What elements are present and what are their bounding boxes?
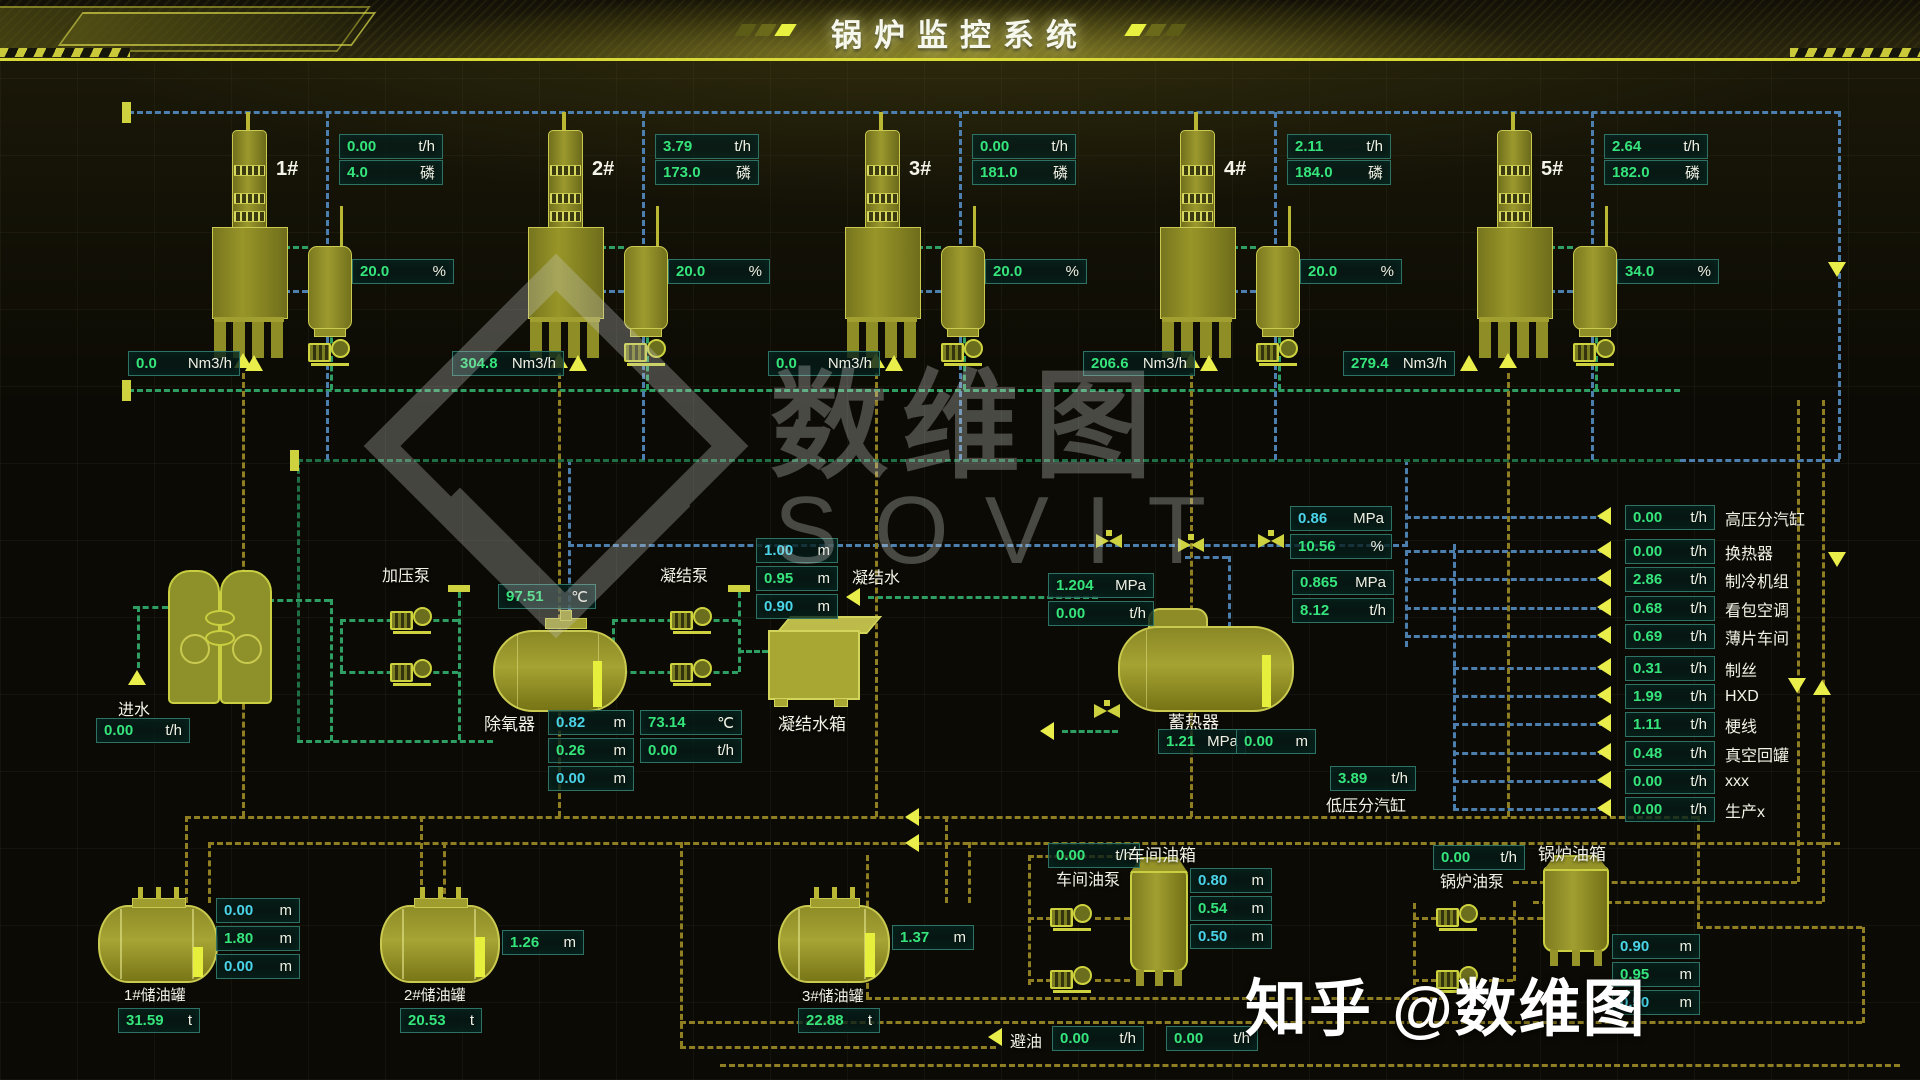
- pipe-segment: [1797, 400, 1800, 882]
- accumulator-inlet-valve[interactable]: [1094, 700, 1120, 721]
- drum-vent-pipe: [1605, 206, 1608, 246]
- boiler-oil-pump-flow-readout: 0.00t/h: [1433, 845, 1525, 870]
- inlet-label: 进水: [118, 696, 150, 720]
- flow-arrow-left: [1597, 686, 1611, 704]
- feedwater-pump[interactable]: [1256, 336, 1300, 366]
- drum-vent-pipe: [340, 206, 343, 246]
- flow-arrow-up: [1813, 680, 1831, 695]
- economizer-vent-pipe: [1511, 112, 1515, 130]
- tank2-label: 2#储油罐: [404, 984, 466, 1005]
- flow-arrow-down: [1828, 262, 1846, 277]
- pipe-end-cap: [728, 585, 750, 592]
- gas-flow-readout: 304.8Nm3/h: [452, 351, 587, 376]
- pipe-segment: [1507, 373, 1510, 817]
- lp-header-label: 低压分汽缸: [1326, 792, 1406, 816]
- boiler-body[interactable]: [1477, 227, 1553, 319]
- flow-arrow-up: [128, 670, 146, 685]
- pipe-segment: [1822, 400, 1825, 902]
- pipe-segment: [1480, 917, 1543, 920]
- consumer-label: xxx: [1725, 773, 1749, 791]
- boiler-oil-pump-label: 锅炉油泵: [1440, 868, 1504, 892]
- pipe-segment: [297, 459, 300, 741]
- pipe-segment: [1697, 816, 1700, 928]
- boiler-oil-pump-1[interactable]: [1436, 901, 1480, 931]
- header-pressure-readouts: 0.86MPa 10.56%: [1290, 506, 1392, 562]
- pipe-end-cap: [290, 450, 299, 471]
- economizer-stack[interactable]: [1180, 130, 1215, 230]
- boiler-id-label: 1#: [276, 158, 298, 181]
- economizer-stack[interactable]: [1497, 130, 1532, 230]
- flow-arrow-up: [245, 355, 263, 371]
- flow-arrow-up: [569, 355, 587, 371]
- pipe-segment: [1028, 979, 1052, 982]
- drum-vent-pipe: [1288, 206, 1291, 246]
- page-title: 锅炉监控系统: [0, 10, 1920, 55]
- consumer-row[interactable]: 0.31t/h 制丝: [1625, 656, 1757, 681]
- boiler-id-label: 4#: [1224, 158, 1246, 181]
- consumer-row[interactable]: 0.00t/h 高压分汽缸: [1625, 505, 1805, 530]
- pipe-segment: [185, 816, 188, 903]
- pipe-segment: [330, 599, 333, 741]
- flow-arrow-left: [846, 588, 860, 606]
- pipe-segment: [1095, 979, 1130, 982]
- consumer-flow-readout: 1.99t/h: [1625, 684, 1715, 709]
- pipe-segment: [128, 389, 1680, 392]
- condensate-pump-1[interactable]: [670, 604, 714, 634]
- load-percent-readout: 20.0%: [1300, 259, 1402, 284]
- consumer-flow-readout: 0.48t/h: [1625, 741, 1715, 766]
- feedwater-pump[interactable]: [624, 336, 668, 366]
- flow-arrow-up: [1200, 355, 1218, 371]
- steam-valve-1[interactable]: [1096, 530, 1122, 551]
- steam-flow-readout: 3.79t/h: [655, 134, 759, 159]
- phosphate-readout: 173.0磷: [655, 160, 759, 185]
- boiler-body[interactable]: [212, 227, 288, 319]
- pipe-segment: [680, 842, 683, 1047]
- tank2-level-readout: 1.26m: [502, 930, 584, 955]
- economizer-vent-pipe: [246, 112, 250, 130]
- tank3-label: 3#储油罐: [802, 985, 864, 1006]
- economizer-vent-pipe: [562, 112, 566, 130]
- tank1-label: 1#储油罐: [124, 984, 186, 1005]
- flow-arrow-left: [1597, 771, 1611, 789]
- steam-drum[interactable]: [1573, 246, 1617, 330]
- consumer-label: 生产x: [1725, 798, 1765, 822]
- phosphate-readout: 182.0磷: [1604, 160, 1708, 185]
- watermark-en-text: SOVIT: [774, 476, 1242, 586]
- pipe-segment: [738, 592, 741, 672]
- steam-valve-2[interactable]: [1178, 534, 1204, 555]
- pipe-segment: [1405, 635, 1605, 638]
- softener-link: [205, 610, 235, 626]
- steam-flow-readout: 0.00t/h: [972, 134, 1076, 159]
- pressure-pump-2[interactable]: [390, 656, 434, 686]
- deaerator-level-readouts: 0.82m 0.26m 0.00m: [548, 710, 634, 794]
- consumer-label: 制丝: [1725, 657, 1757, 681]
- pipe-segment: [1095, 917, 1130, 920]
- boiler-id-label: 2#: [592, 158, 614, 181]
- oil-tank-3[interactable]: [778, 905, 890, 983]
- economizer-stack[interactable]: [548, 130, 583, 230]
- pipe-segment: [1453, 723, 1605, 726]
- pipe-segment: [340, 619, 343, 671]
- consumer-flow-readout: 0.69t/h: [1625, 624, 1715, 649]
- pipe-end-cap: [122, 102, 131, 123]
- accumulator-vessel[interactable]: [1118, 626, 1294, 712]
- flow-arrow-down: [1828, 552, 1846, 567]
- pipe-segment: [1062, 730, 1118, 733]
- flow-arrow-left: [1597, 541, 1611, 559]
- economizer-vent-pipe: [1194, 112, 1198, 130]
- drain-label: 避油: [1010, 1028, 1042, 1052]
- drum-vent-pipe: [656, 206, 659, 246]
- shop-oil-tank[interactable]: [1130, 868, 1188, 972]
- deaerator-vessel[interactable]: [493, 630, 627, 712]
- gas-flow-readout: 0.0Nm3/h: [128, 351, 263, 376]
- economizer-vent-pipe: [879, 112, 883, 130]
- tank1-level-readouts: 0.00m 1.80m 0.00m: [216, 898, 300, 982]
- boiler-oil-tank-label: 锅炉油箱: [1538, 840, 1606, 865]
- phosphate-readout: 4.0磷: [339, 160, 443, 185]
- pipe-end-cap: [122, 380, 131, 401]
- header-flow-readouts: 0.865MPa 8.12t/h: [1292, 570, 1394, 626]
- flow-arrow-up: [1460, 355, 1478, 371]
- boiler-id-label: 5#: [1541, 158, 1563, 181]
- consumer-row[interactable]: 0.69t/h 薄片车间: [1625, 624, 1789, 649]
- pipe-segment: [1862, 927, 1865, 1023]
- pipe-segment: [1228, 556, 1231, 628]
- steam-drum[interactable]: [308, 246, 352, 330]
- pipe-segment: [1405, 578, 1605, 581]
- steam-flow-readout: 2.64t/h: [1604, 134, 1708, 159]
- hazard-stripe-right: [1790, 48, 1920, 57]
- pipe-segment: [1453, 544, 1456, 810]
- pipe-segment: [137, 606, 140, 668]
- condensate-pump-2[interactable]: [670, 656, 714, 686]
- lp-header-flow-readout: 3.89t/h: [1330, 766, 1416, 791]
- pipe-segment: [208, 842, 211, 903]
- pipe-segment: [738, 650, 768, 653]
- flow-arrow-left: [905, 808, 919, 826]
- boiler-scada-screen: 锅炉监控系统: [0, 0, 1920, 1080]
- boiler-id-label: 3#: [909, 158, 931, 181]
- pipe-segment: [1453, 780, 1605, 783]
- tank3-level-readout: 1.37m: [892, 925, 974, 950]
- phosphate-readout: 184.0磷: [1287, 160, 1391, 185]
- shop-pump-flow-readout: 0.00t/h: [1048, 843, 1140, 868]
- consumer-label: 制冷机组: [1725, 568, 1789, 592]
- consumer-row[interactable]: 1.99t/h HXD: [1625, 684, 1759, 709]
- shop-oil-pump-1[interactable]: [1050, 901, 1094, 931]
- pipe-segment: [1413, 917, 1437, 920]
- steam-valve-3[interactable]: [1258, 530, 1284, 551]
- steam-drum[interactable]: [1256, 246, 1300, 330]
- pipe-segment: [128, 111, 1840, 114]
- pipe-segment: [1453, 695, 1605, 698]
- flow-arrow-up: [1499, 353, 1517, 368]
- consumer-row[interactable]: 2.86t/h 制冷机组: [1625, 567, 1789, 592]
- pipe-segment: [1453, 667, 1605, 670]
- consumer-flow-readout: 2.86t/h: [1625, 567, 1715, 592]
- pipe-segment: [185, 816, 1697, 819]
- gas-flow-readout: 206.6Nm3/h: [1083, 351, 1218, 376]
- softener-link: [205, 630, 235, 646]
- consumer-label: 高压分汽缸: [1725, 506, 1805, 530]
- deaerator-stub: [560, 610, 572, 621]
- consumer-label: 梗线: [1725, 713, 1757, 737]
- consumer-label: 换热器: [1725, 540, 1773, 564]
- pipe-segment: [875, 373, 878, 817]
- consumer-row[interactable]: 0.48t/h 真空回罐: [1625, 741, 1789, 766]
- drain-flow-readout: 0.00t/h: [1052, 1026, 1144, 1051]
- load-percent-readout: 20.0%: [668, 259, 770, 284]
- cond-pump-label: 凝结泵: [660, 562, 708, 586]
- boiler-legs: [1479, 317, 1549, 358]
- pipe-segment: [1405, 459, 1408, 647]
- gas-flow-readout: 279.4Nm3/h: [1343, 351, 1478, 376]
- consumer-label: 看包空调: [1725, 597, 1789, 621]
- pipe-segment: [1405, 516, 1605, 519]
- consumer-row[interactable]: 0.00t/h 换热器: [1625, 539, 1773, 564]
- hazard-stripe-left: [0, 48, 130, 57]
- flow-arrow-left: [1597, 714, 1611, 732]
- inlet-flow-readout: 0.00t/h: [96, 718, 190, 743]
- deaerator-label: 除氧器: [484, 710, 535, 735]
- pipe-segment: [680, 1046, 996, 1049]
- pipe-segment: [1680, 459, 1840, 462]
- steam-drum[interactable]: [941, 246, 985, 330]
- pipe-segment: [297, 459, 1680, 462]
- boiler-oil-tank[interactable]: [1543, 866, 1609, 952]
- oil-tank-2[interactable]: [380, 905, 500, 983]
- cond-tank-label: 凝结水箱: [778, 710, 846, 735]
- pipe-end-cap: [448, 585, 470, 592]
- consumer-label: HXD: [1725, 688, 1759, 706]
- steam-flow-readout: 2.11t/h: [1287, 134, 1391, 159]
- cond-water-label: 凝结水: [852, 564, 900, 588]
- accumulator-label: 蓄热器: [1168, 708, 1219, 733]
- flow-arrow-left: [988, 1028, 1002, 1046]
- pressure-pump-label: 加压泵: [382, 562, 430, 586]
- flow-arrow-left: [1597, 799, 1611, 817]
- pipe-segment: [1405, 607, 1605, 610]
- consumer-row[interactable]: 0.68t/h 看包空调: [1625, 596, 1789, 621]
- flow-arrow-up: [885, 355, 903, 371]
- feedwater-pump[interactable]: [941, 336, 985, 366]
- pressure-pump-1[interactable]: [390, 604, 434, 634]
- pipe-segment: [720, 1064, 1900, 1067]
- boiler-body[interactable]: [845, 227, 921, 319]
- feedwater-pump[interactable]: [308, 336, 352, 366]
- boiler-body[interactable]: [528, 227, 604, 319]
- consumer-flow-readout: 1.11t/h: [1625, 712, 1715, 737]
- economizer-stack[interactable]: [232, 130, 267, 230]
- pipe-segment: [297, 740, 493, 743]
- oil-tank-1[interactable]: [98, 905, 218, 983]
- cond-tank-level-readouts: 1.00m 0.95m 0.90m: [756, 538, 838, 622]
- consumer-label: 真空回罐: [1725, 742, 1789, 766]
- consumer-flow-readout: 0.00t/h: [1625, 769, 1715, 794]
- consumer-flow-readout: 0.00t/h: [1625, 797, 1715, 822]
- flow-arrow-left: [1597, 743, 1611, 761]
- shop-oil-pump-2[interactable]: [1050, 963, 1094, 993]
- consumer-row[interactable]: 0.00t/h 生产x: [1625, 797, 1765, 822]
- flow-arrow-left: [1597, 569, 1611, 587]
- pipe-segment: [1838, 111, 1841, 459]
- flow-arrow-left: [1597, 626, 1611, 644]
- pipe-segment: [945, 816, 948, 903]
- shop-pump-label: 车间油泵: [1056, 866, 1120, 890]
- pipe-segment: [1405, 550, 1605, 553]
- steam-drum[interactable]: [624, 246, 668, 330]
- consumer-row[interactable]: 0.00t/h xxx: [1625, 769, 1749, 794]
- consumer-flow-readout: 0.68t/h: [1625, 596, 1715, 621]
- shop-tank-level-readouts: 0.80m 0.54m 0.50m: [1190, 868, 1272, 952]
- consumer-flow-readout: 0.31t/h: [1625, 656, 1715, 681]
- consumer-label: 薄片车间: [1725, 625, 1789, 649]
- pipe-segment: [458, 592, 461, 740]
- accumulator-level-readout: 0.00m: [1236, 729, 1316, 754]
- condensate-return-readouts: 73.14℃ 0.00t/h: [640, 710, 742, 766]
- phosphate-readout: 181.0磷: [972, 160, 1076, 185]
- load-percent-readout: 20.0%: [352, 259, 454, 284]
- pipe-segment: [1028, 917, 1052, 920]
- gas-flow-readout: 0.0Nm3/h: [768, 351, 903, 376]
- pipe-segment: [1453, 808, 1605, 811]
- flow-arrow-left: [905, 834, 919, 852]
- tank3-weight-readout: 22.88t: [798, 1008, 880, 1033]
- flow-arrow-left: [1040, 722, 1054, 740]
- pipe-segment: [1028, 855, 1031, 985]
- economizer-stack[interactable]: [865, 130, 900, 230]
- load-percent-readout: 34.0%: [1617, 259, 1719, 284]
- boiler-body[interactable]: [1160, 227, 1236, 319]
- pipe-segment: [443, 842, 446, 903]
- deaerator-temp-readout: 97.51℃: [498, 584, 596, 609]
- load-percent-readout: 20.0%: [985, 259, 1087, 284]
- tank2-weight-readout: 20.53t: [400, 1008, 482, 1033]
- credit-watermark: 知乎 @数维图: [1245, 958, 1647, 1048]
- line-pressure-readouts: 1.204MPa 0.00t/h: [1048, 573, 1154, 629]
- pipe-segment: [1697, 926, 1862, 929]
- consumer-row[interactable]: 1.11t/h 梗线: [1625, 712, 1757, 737]
- flow-arrow-left: [1597, 507, 1611, 525]
- tank1-weight-readout: 31.59t: [118, 1008, 200, 1033]
- flow-arrow-left: [1597, 598, 1611, 616]
- consumer-flow-readout: 0.00t/h: [1625, 505, 1715, 530]
- title-bar: 锅炉监控系统: [0, 0, 1920, 61]
- flow-arrow-down: [1788, 678, 1806, 693]
- flow-arrow-left: [1597, 658, 1611, 676]
- shop-tank-label: 车间油箱: [1128, 841, 1196, 866]
- feedwater-pump[interactable]: [1573, 336, 1617, 366]
- pipe-segment: [968, 842, 971, 903]
- steam-flow-readout: 0.00t/h: [339, 134, 443, 159]
- consumer-flow-readout: 0.00t/h: [1625, 539, 1715, 564]
- pipe-segment: [1453, 752, 1605, 755]
- drum-vent-pipe: [973, 206, 976, 246]
